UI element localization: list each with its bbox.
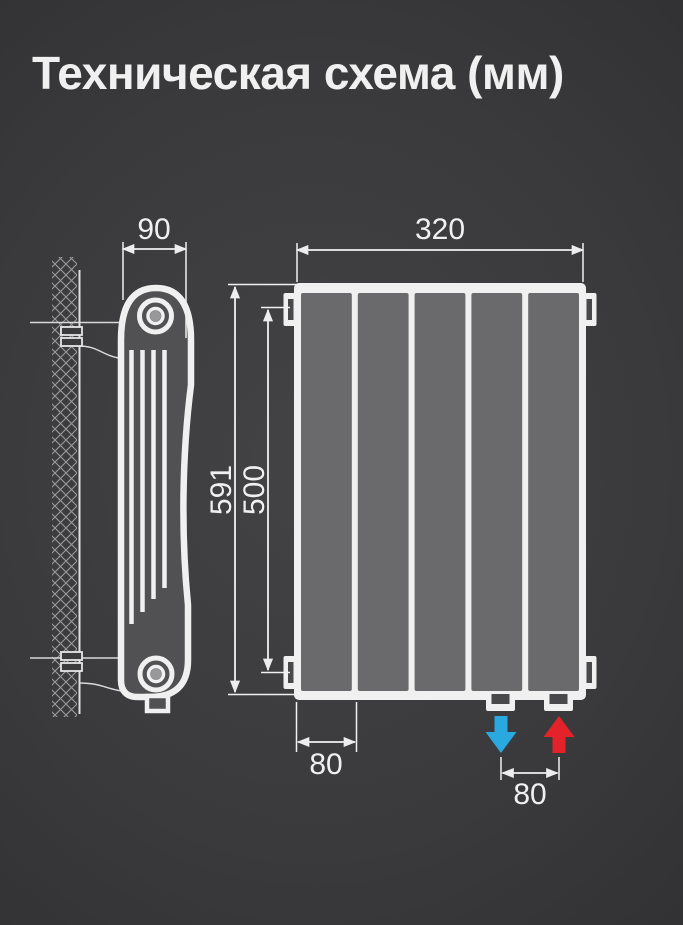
pipe-stub-return: [486, 694, 515, 711]
connection-tab-top-left: [284, 293, 298, 326]
dimension-axis-500: 500: [238, 308, 290, 673]
page-title: Техническая схема (мм): [32, 47, 564, 99]
dimension-label: 500: [238, 465, 271, 515]
technical-diagram-page: Техническая схема (мм): [0, 0, 683, 925]
radiator-section-panel: [528, 293, 579, 691]
wall-hatch: [52, 257, 77, 717]
flow-return-arrow-down: [486, 716, 517, 753]
wall-bracket-bottom: [61, 663, 82, 671]
wall-bracket-top: [61, 327, 82, 335]
drain-plug: [147, 696, 168, 711]
dimension-label: 320: [415, 213, 465, 246]
side-view: 90: [30, 213, 191, 717]
dimension-label: 80: [513, 778, 546, 811]
pipe-stub-supply: [544, 694, 573, 711]
flow-supply-arrow-up: [544, 716, 575, 753]
connection-tab-top-right: [583, 293, 597, 326]
radiator-technical-diagram: Техническая схема (мм): [0, 0, 683, 925]
dimension-pipes-80: 80: [501, 757, 559, 811]
front-view: 320 591 500 80 80: [205, 213, 597, 811]
radiator-section-panel: [415, 293, 466, 691]
radiator-section-panel: [301, 293, 352, 691]
connection-tab-bottom-right: [583, 656, 597, 689]
radiator-section-panel: [471, 293, 522, 691]
dimension-label: 591: [205, 465, 238, 515]
dimension-section-80: 80: [297, 702, 357, 781]
dimension-label: 80: [309, 748, 342, 781]
radiator-section-panel: [358, 293, 409, 691]
dimension-width-320: 320: [297, 213, 583, 282]
wall-bracket-top: [61, 338, 82, 346]
dimension-label: 90: [137, 213, 170, 246]
wall-bracket-bottom: [61, 652, 82, 660]
